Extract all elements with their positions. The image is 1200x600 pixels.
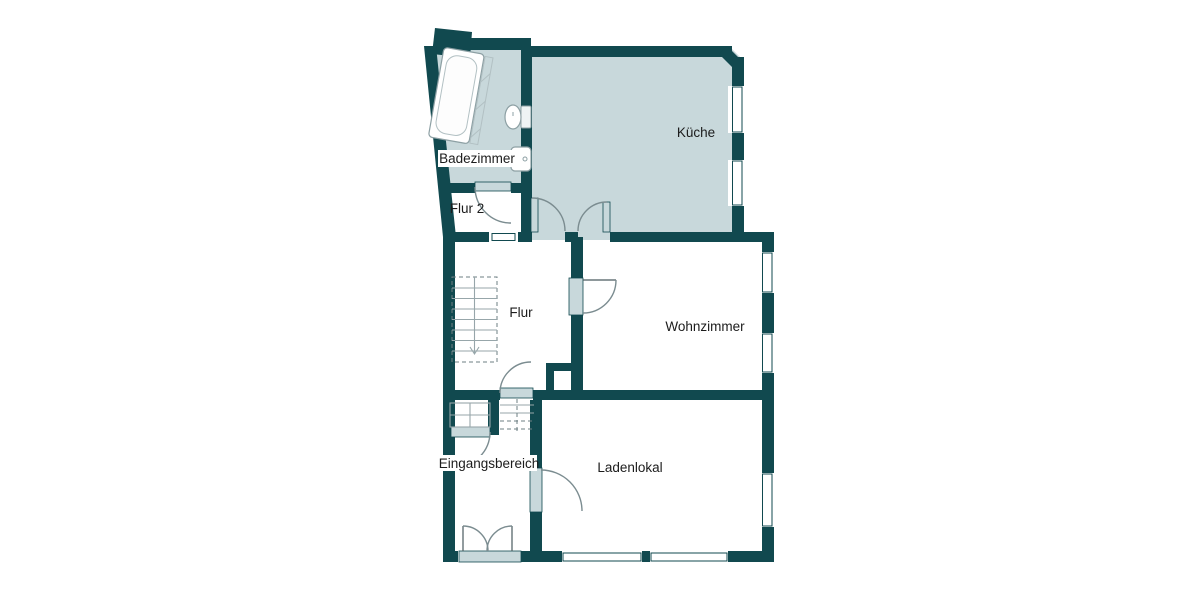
wall-bath-bottom [511, 183, 521, 193]
wall-kueche-top [523, 46, 732, 57]
toilet-icon [505, 105, 531, 129]
door-eingang-ladenlokal [530, 468, 582, 512]
wall-bath-bottom [441, 183, 475, 193]
window-wohnzimmer-1 [758, 252, 777, 293]
door-wohnzimmer [569, 278, 616, 315]
wall-middle [533, 390, 774, 400]
room-label-badezimmer: Badezimmer [439, 151, 515, 166]
wall-kueche-right [732, 57, 744, 86]
floor-plan-canvas: Badezimmer Flur 2 Küche Flur Wohnzimmer … [0, 0, 1200, 600]
room-label-wohnzimmer: Wohnzimmer [665, 319, 745, 334]
wall-bottom [642, 551, 650, 562]
window-ladenlokal-right [758, 473, 777, 527]
window-wohnzimmer-2 [758, 333, 777, 373]
entrance-double-door [459, 526, 521, 562]
wall-kueche-bottom [610, 232, 774, 242]
room-label-flur: Flur [509, 305, 533, 320]
wall-kueche-right [732, 133, 744, 160]
room-label-ladenlokal: Ladenlokal [597, 460, 662, 475]
wall-wohnzimmer-right [762, 293, 774, 333]
wall-bath-top [460, 38, 531, 50]
window-kueche-1 [728, 86, 747, 133]
wall-ladenlokal-right [762, 400, 774, 473]
wall-bottom [728, 551, 774, 562]
wall-wohnzimmer-right [762, 373, 774, 400]
window-kueche-2 [728, 160, 747, 206]
window-ladenlokal-bottom-2 [650, 549, 728, 565]
wall-bottom [518, 551, 562, 562]
room-label-flur2: Flur 2 [450, 201, 485, 216]
door-flur-eingang [500, 362, 533, 398]
wall-bottom [443, 551, 458, 562]
room-label-eingangsbereich: Eingangsbereich [439, 456, 540, 471]
floor-plan: Badezimmer Flur 2 Küche Flur Wohnzimmer … [0, 0, 1200, 600]
wall-flur2-bottom [517, 232, 530, 242]
wall-flur-wohnzimmer [571, 237, 583, 280]
window-ladenlokal-bottom-1 [562, 549, 642, 565]
stairs-down-icon [452, 277, 497, 362]
window-flur2-opening [489, 230, 518, 244]
nook-interior [554, 371, 571, 390]
room-label-kueche: Küche [677, 125, 715, 140]
room-kueche [523, 48, 744, 240]
wall-flur-wohnzimmer [571, 313, 583, 400]
wall-bath-right [521, 46, 532, 242]
wall-wohnzimmer-right [762, 237, 774, 252]
